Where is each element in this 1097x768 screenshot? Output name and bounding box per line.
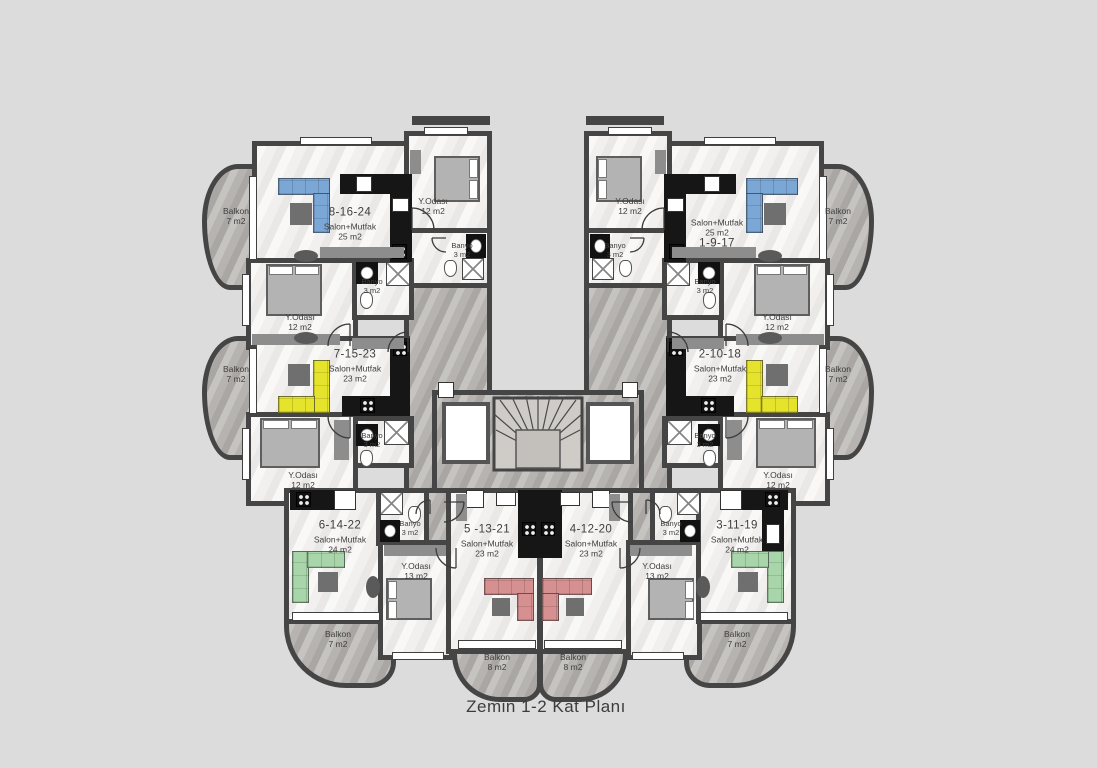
balcony-door-mid-left — [249, 348, 257, 414]
wall-divider-tower-left — [409, 228, 487, 233]
pillow — [598, 180, 607, 199]
room-area: 12 m2 — [763, 480, 793, 490]
room-name: Y.Odası — [401, 561, 431, 571]
roof-slab-left — [412, 116, 490, 125]
door-shadow — [696, 576, 710, 598]
sofa-unit5-arm — [517, 593, 534, 621]
room-area: 3 m2 — [451, 251, 472, 260]
balcony-door-top-left — [249, 176, 257, 260]
bedroom-label-left-2: Y.Odası 12 m2 — [288, 470, 318, 490]
pillow — [291, 420, 317, 429]
stove-unit2 — [701, 398, 716, 413]
pillow — [685, 601, 694, 619]
wardrobe-bottom-left — [384, 545, 446, 556]
oven-unit1 — [667, 198, 684, 212]
shower-tower-left — [462, 258, 484, 280]
sink-banyo-bottom-right — [680, 520, 700, 542]
coffee-table-unit4 — [566, 598, 584, 616]
banyo-label-tower-right: Banyo 3 m2 — [604, 242, 625, 260]
room-area: 12 m2 — [762, 322, 792, 332]
bedroom-label-bottom-left: Y.Odası 13 m2 — [401, 561, 431, 581]
room-area: 25 m2 — [691, 228, 743, 238]
toilet-tower-right — [619, 260, 632, 277]
window-salon-unit1 — [704, 137, 776, 145]
room-name: Salon+Mutfak — [565, 538, 617, 548]
shaft-box-right — [622, 382, 638, 398]
window-bedroom-bottom-right — [632, 652, 684, 660]
coffee-table-unit6 — [318, 572, 338, 592]
wardrobe-left-2 — [334, 420, 349, 460]
room-area: 23 m2 — [694, 373, 746, 383]
bedroom-label-bottom-right: Y.Odası 13 m2 — [642, 561, 672, 581]
banyo-label-left-2: Banyo 3 m2 — [361, 432, 382, 450]
coffee-table-unit5 — [492, 598, 510, 616]
room-area: 3 m2 — [361, 441, 382, 450]
oven-unit5 — [466, 490, 484, 508]
room-area: 13 m2 — [642, 571, 672, 581]
unit-number: 8-16-24 — [324, 207, 376, 221]
floor-plan-canvas: 8-16-24 Salon+Mutfak 25 m2 Salon+Mutfak … — [0, 0, 1097, 768]
kitchen-counter-unit7 — [342, 396, 410, 416]
unit-label-3-11-19: 3-11-19 Salon+Mutfak 24 m2 — [711, 520, 763, 555]
room-area: 3 m2 — [361, 287, 382, 296]
balcony-label-mid-right: Balkon 7 m2 — [825, 364, 851, 384]
appliance-unit1 — [704, 176, 720, 192]
room-name: Salon+Mutfak — [694, 363, 746, 373]
balcony-label-bottom-left: Balkon 7 m2 — [325, 629, 351, 649]
room-area: 23 m2 — [565, 548, 617, 558]
banyo-label-bottom-left: Banyo 3 m2 — [399, 520, 420, 538]
shower-banyo-left-1 — [386, 262, 410, 286]
unit-label-4-12-20: 4-12-20 Salon+Mutfak 23 m2 — [565, 524, 617, 559]
shower-banyo-right-1 — [666, 262, 690, 286]
room-area: 8 m2 — [484, 662, 510, 672]
shaft-box-left — [438, 382, 454, 398]
toilet-tower-left — [444, 260, 457, 277]
room-name: Salon+Mutfak — [461, 538, 513, 548]
salon-unit1 — [666, 141, 824, 263]
room-name: Salon+Mutfak — [324, 221, 376, 231]
window-tower-left — [424, 127, 468, 135]
bedroom-label-right-2: Y.Odası 12 m2 — [763, 470, 793, 490]
pillow — [263, 420, 289, 429]
pillow — [388, 601, 397, 619]
wardrobe-tower-right — [655, 150, 666, 174]
plan-title: Zemin 1-2 Kat Planı — [466, 697, 626, 717]
window-bedroom-right-1 — [826, 274, 834, 326]
room-name: Balkon — [484, 652, 510, 662]
railing-balcony-bottom-right — [700, 612, 788, 621]
room-area: 3 m2 — [694, 441, 715, 450]
appliance-unit4 — [560, 492, 580, 506]
room-name: Salon+Mutfak — [711, 534, 763, 544]
balcony-label-top-right: Balkon 7 m2 — [825, 206, 851, 226]
pillow — [469, 159, 478, 178]
shower-banyo-right-2 — [667, 420, 692, 445]
pillow — [469, 180, 478, 199]
sofa-unit3-arm — [767, 551, 784, 603]
bedroom-label-tower-left: Y.Odası 12 m2 — [418, 196, 448, 216]
coffee-table-unit7 — [288, 364, 310, 386]
room-name: Balkon — [825, 206, 851, 216]
sofa-unit1-arm — [746, 193, 763, 233]
sink-banyo-bottom-left — [380, 520, 400, 542]
door-shadow — [294, 332, 318, 344]
room-name: Balkon — [724, 629, 750, 639]
unit-number: 3-11-19 — [711, 520, 763, 534]
unit-number: 4-12-20 — [565, 524, 617, 538]
banyo-label-left-1: Banyo 3 m2 — [361, 278, 382, 296]
coffee-table-unit8 — [290, 203, 312, 225]
sideboard-unit8 — [320, 247, 404, 258]
room-area: 3 m2 — [694, 287, 715, 296]
sofa-unit4-arm — [542, 593, 559, 621]
pillow — [295, 266, 319, 275]
unit-label-2-10-18: 2-10-18 Salon+Mutfak 23 m2 — [694, 349, 746, 384]
banyo-label-right-2: Banyo 3 m2 — [694, 432, 715, 450]
stove-unit3 — [765, 492, 780, 507]
pillow — [757, 266, 781, 275]
window-bedroom-bottom-left — [392, 652, 444, 660]
unit-label-5-13-21: 5 -13-21 Salon+Mutfak 23 m2 — [461, 524, 513, 559]
pillow — [783, 266, 807, 275]
room-name: Balkon — [223, 364, 249, 374]
balcony-label-center-right: Balkon 8 m2 — [560, 652, 586, 672]
window-bedroom-right-2 — [826, 428, 834, 480]
window-bedroom-left-1 — [242, 274, 250, 326]
unit-number: 5 -13-21 — [461, 524, 513, 538]
wardrobe-right-2 — [727, 420, 742, 460]
room-name: Y.Odası — [642, 561, 672, 571]
kitchen-counter-unit2 — [666, 396, 734, 416]
pillow — [598, 159, 607, 178]
oven-unit4 — [592, 490, 610, 508]
room-area: 12 m2 — [418, 206, 448, 216]
pillow — [787, 420, 813, 429]
room-name: Y.Odası — [285, 312, 315, 322]
room-area: 23 m2 — [329, 373, 381, 383]
unit-label-7-15-23: 7-15-23 Salon+Mutfak 23 m2 — [329, 349, 381, 384]
door-shadow — [294, 250, 318, 262]
oven-unit8 — [392, 198, 409, 212]
banyo-label-right-1: Banyo 3 m2 — [694, 278, 715, 296]
toilet-banyo-left-2 — [360, 450, 373, 467]
room-name: Balkon — [560, 652, 586, 662]
shower-banyo-bottom-right — [677, 492, 700, 515]
balcony-label-center-left: Balkon 8 m2 — [484, 652, 510, 672]
railing-balcony-bottom-left — [292, 612, 380, 621]
pillow — [759, 420, 785, 429]
appliance-unit6 — [334, 490, 356, 510]
unit-label-1-9-17: Salon+Mutfak 25 m2 1-9-17 — [691, 218, 743, 253]
room-area: 25 m2 — [324, 231, 376, 241]
elevator-left — [442, 402, 490, 464]
room-area: 3 m2 — [604, 251, 625, 260]
coffee-table-unit1 — [764, 203, 786, 225]
unit-number: 6-14-22 — [314, 520, 366, 534]
railing-balcony-center-right — [544, 640, 622, 649]
fridge-unit3 — [766, 524, 780, 544]
room-area: 8 m2 — [560, 662, 586, 672]
appliance-unit8 — [356, 176, 372, 192]
shower-tower-right — [592, 258, 614, 280]
door-shadow — [366, 576, 380, 598]
room-area: 12 m2 — [288, 480, 318, 490]
wardrobe-tower-left — [410, 150, 421, 174]
room-area: 13 m2 — [401, 571, 431, 581]
sofa-unit7 — [278, 396, 315, 413]
sofa-unit2 — [761, 396, 798, 413]
roof-slab-right — [586, 116, 664, 125]
unit-number: 2-10-18 — [694, 349, 746, 363]
window-bedroom-left-2 — [242, 428, 250, 480]
banyo-label-tower-left: Banyo 3 m2 — [451, 242, 472, 260]
room-name: Salon+Mutfak — [329, 363, 381, 373]
room-name: Y.Odası — [288, 470, 318, 480]
kitchen-counter-unit3 — [740, 490, 788, 510]
room-area: 7 m2 — [223, 374, 249, 384]
room-area: 7 m2 — [825, 216, 851, 226]
coffee-table-unit3 — [738, 572, 758, 592]
banyo-label-bottom-right: Banyo 3 m2 — [660, 520, 681, 538]
bedroom-label-left-1: Y.Odası 12 m2 — [285, 312, 315, 332]
room-name: Balkon — [325, 629, 351, 639]
bedroom-label-tower-right: Y.Odası 12 m2 — [615, 196, 645, 216]
window-salon-unit8 — [300, 137, 372, 145]
balcony-label-top-left: Balkon 7 m2 — [223, 206, 249, 226]
sideboard-unit7 — [352, 338, 404, 349]
room-area: 7 m2 — [223, 216, 249, 226]
room-area: 12 m2 — [285, 322, 315, 332]
salon-unit8 — [252, 141, 410, 263]
room-name: Y.Odası — [763, 470, 793, 480]
room-area: 7 m2 — [724, 639, 750, 649]
room-area: 3 m2 — [660, 529, 681, 538]
unit-label-8-16-24: 8-16-24 Salon+Mutfak 25 m2 — [324, 207, 376, 242]
pillow — [685, 581, 694, 599]
sofa-unit7-arm — [313, 360, 330, 413]
pillow — [388, 581, 397, 599]
room-name: Y.Odası — [615, 196, 645, 206]
sideboard-unit2 — [672, 338, 724, 349]
appliance-unit3 — [720, 490, 742, 510]
room-area: 24 m2 — [711, 544, 763, 554]
room-area: 7 m2 — [325, 639, 351, 649]
stove-unit6 — [296, 492, 311, 507]
wall-divider-tower-right — [589, 228, 667, 233]
pillow — [269, 266, 293, 275]
room-area: 23 m2 — [461, 548, 513, 558]
shoe-cabinet-unit4 — [609, 494, 620, 521]
bedroom-label-right-1: Y.Odası 12 m2 — [762, 312, 792, 332]
window-tower-right — [608, 127, 652, 135]
door-shadow — [758, 250, 782, 262]
balcony-label-bottom-right: Balkon 7 m2 — [724, 629, 750, 649]
room-name: Salon+Mutfak — [691, 218, 743, 228]
unit-label-6-14-22: 6-14-22 Salon+Mutfak 24 m2 — [314, 520, 366, 555]
stove-unit7 — [360, 398, 375, 413]
shower-banyo-left-2 — [384, 420, 409, 445]
stove-unit4 — [541, 522, 555, 536]
room-area: 7 m2 — [825, 374, 851, 384]
room-name: Y.Odası — [418, 196, 448, 206]
elevator-right — [586, 402, 634, 464]
toilet-banyo-right-2 — [703, 450, 716, 467]
room-area: 24 m2 — [314, 544, 366, 554]
shower-banyo-bottom-left — [380, 492, 403, 515]
room-area: 3 m2 — [399, 529, 420, 538]
room-name: Balkon — [825, 364, 851, 374]
room-name: Salon+Mutfak — [314, 534, 366, 544]
wardrobe-bottom-right — [630, 545, 692, 556]
room-area: 12 m2 — [615, 206, 645, 216]
railing-balcony-center-left — [458, 640, 536, 649]
balcony-label-mid-left: Balkon 7 m2 — [223, 364, 249, 384]
unit-number: 1-9-17 — [691, 238, 743, 252]
coffee-table-unit2 — [766, 364, 788, 386]
stove-unit5 — [522, 522, 536, 536]
room-name: Balkon — [223, 206, 249, 216]
shoe-cabinet-unit5 — [456, 494, 467, 521]
room-name: Y.Odası — [762, 312, 792, 322]
appliance-unit5 — [496, 492, 516, 506]
door-shadow — [758, 332, 782, 344]
unit-number: 7-15-23 — [329, 349, 381, 363]
